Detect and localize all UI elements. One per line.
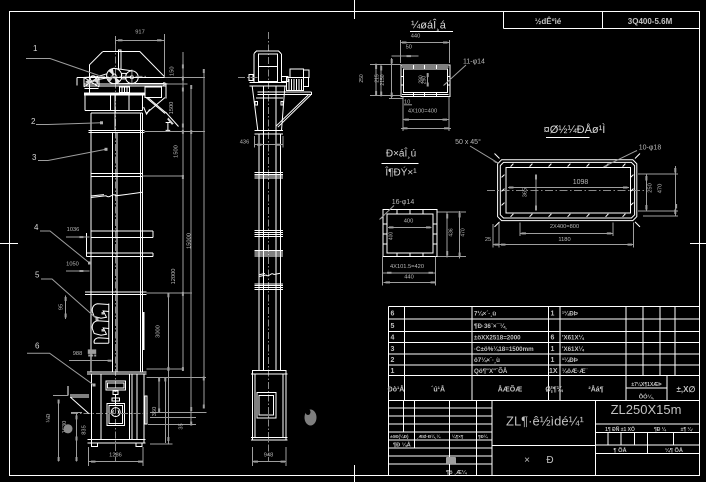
svg-text:470: 470 (658, 184, 664, 194)
svg-text:1286: 1286 (109, 453, 122, 459)
svg-text:3000: 3000 (156, 325, 162, 338)
svg-text:1500: 1500 (174, 145, 180, 158)
svg-text:2: 2 (391, 357, 395, 364)
svg-text:400: 400 (389, 232, 395, 241)
svg-text:4: 4 (34, 223, 39, 232)
svg-text:ZL250X15m: ZL250X15m (611, 402, 682, 417)
svg-text:ZL¶·ê½ìdé¼¹: ZL¶·ê½ìdé¼¹ (506, 414, 584, 429)
svg-text:1: 1 (551, 311, 555, 318)
svg-text:1: 1 (391, 368, 395, 375)
svg-text:¹¼ÐÞ: ¹¼ÐÞ (562, 311, 578, 318)
svg-text:948: 948 (264, 453, 274, 459)
svg-text:±,X∅: ±,X∅ (677, 385, 696, 394)
svg-text:Qö¶"X"´ÕÅ: Qö¶"X"´ÕÅ (474, 368, 508, 375)
svg-text:440: 440 (411, 34, 421, 40)
svg-text:3: 3 (391, 346, 395, 353)
svg-text:±öÐ(¼Ð): ±öÐ(¼Ð) (390, 433, 409, 439)
svg-text:1X: 1X (549, 368, 558, 375)
svg-text:250: 250 (422, 76, 428, 85)
svg-text:25: 25 (485, 237, 491, 243)
svg-text:150: 150 (169, 66, 175, 76)
svg-text:±7¼X¶1XÆÞ: ±7¼X¶1XÆÞ (631, 381, 662, 388)
svg-text:²Åá¶: ²Åá¶ (588, 385, 603, 394)
svg-text:917: 917 (135, 30, 145, 36)
svg-text:436: 436 (449, 228, 455, 237)
svg-text:95: 95 (59, 304, 65, 310)
svg-text:11-φ14: 11-φ14 (463, 59, 485, 66)
svg-text:¼øáÎ¸á: ¼øáÎ¸á (411, 19, 447, 32)
svg-text:·C±ö%¼18=1500mm: ·C±ö%¼18=1500mm (474, 346, 534, 353)
svg-text:6: 6 (35, 342, 40, 351)
svg-text:250: 250 (359, 74, 365, 83)
svg-text:±öXX2518=2000: ±öXX2518=2000 (474, 335, 521, 342)
svg-text:'X61X¼: 'X61X¼ (562, 335, 585, 342)
svg-text:½dÊºìé: ½dÊºìé (535, 17, 562, 26)
svg-text:1180: 1180 (558, 237, 570, 243)
svg-text:¶Ð¼: ¶Ð¼ (478, 433, 489, 439)
svg-text:5: 5 (35, 271, 40, 280)
svg-text:1500: 1500 (169, 102, 175, 115)
svg-text:4X100=400: 4X100=400 (408, 109, 437, 115)
svg-text:1: 1 (33, 44, 38, 53)
svg-text:¤Ø½¼ÐÅø¹Ì: ¤Ø½¼ÐÅø¹Ì (544, 123, 606, 136)
svg-text:15000: 15000 (187, 233, 193, 249)
svg-text:¼Ð: ¼Ð (46, 414, 52, 423)
svg-text:¼¶ ÕÅ: ¼¶ ÕÅ (665, 447, 683, 454)
svg-text:400: 400 (404, 219, 414, 225)
svg-text:250: 250 (648, 183, 654, 193)
svg-text:¶Ð ¼: ¶Ð ¼ (654, 426, 667, 433)
svg-text:4: 4 (391, 335, 395, 342)
svg-text:¼¶×¶: ¼¶×¶ (452, 433, 464, 439)
svg-text:365: 365 (523, 188, 529, 198)
svg-text:6: 6 (551, 335, 555, 342)
svg-text:ÅÆÕÆ: ÅÆÕÆ (498, 385, 523, 394)
svg-text:ÕÓ¼¸: ÕÓ¼¸ (639, 393, 655, 401)
svg-text:16-φ14: 16-φ14 (392, 199, 415, 206)
svg-text:50: 50 (406, 45, 412, 51)
svg-text:Î¶ÐÝ×¹: Î¶ÐÝ×¹ (384, 166, 417, 179)
svg-text:ö7¼×´·¸ù: ö7¼×´·¸ù (474, 357, 500, 364)
svg-text:2: 2 (31, 117, 36, 126)
svg-text:1036: 1036 (67, 227, 80, 233)
svg-text:Ðò¹Å: Ðò¹Å (388, 385, 405, 394)
svg-text:×: × (524, 455, 530, 466)
svg-text:¶ö ¸Æ¼: ¶ö ¸Æ¼ (446, 469, 468, 476)
svg-text:¼öÆ·Æ¨: ¼öÆ·Æ¨ (562, 368, 588, 375)
svg-text:1: 1 (551, 346, 555, 353)
svg-text:2150: 2150 (380, 74, 386, 85)
svg-text:50 x 45°: 50 x 45° (455, 138, 481, 146)
svg-text:470: 470 (461, 228, 467, 237)
svg-text:440: 440 (404, 275, 414, 281)
svg-text:12000: 12000 (171, 269, 177, 285)
svg-text:1098: 1098 (573, 179, 589, 186)
svg-text:4X101.5=420: 4X101.5=420 (390, 264, 424, 270)
svg-text:¸ÆØ·Ð¼¸¼: ¸ÆØ·Ð¼¸¼ (417, 433, 441, 439)
svg-text:Ð×áÎ¸ú: Ð×áÎ¸ú (386, 147, 416, 160)
svg-text:2X400=800: 2X400=800 (550, 224, 579, 230)
svg-text:10-φ18: 10-φ18 (639, 145, 662, 152)
svg-text:Ð: Ð (546, 455, 553, 466)
svg-text:¶Ð ¼Å: ¶Ð ¼Å (393, 442, 411, 449)
svg-text:1: 1 (551, 357, 555, 364)
svg-text:'X61X¼: 'X61X¼ (562, 346, 585, 353)
svg-text:988: 988 (73, 351, 83, 357)
svg-text:1050: 1050 (66, 261, 79, 267)
svg-text:5: 5 (391, 323, 395, 330)
svg-text:3: 3 (32, 153, 37, 162)
svg-text:35: 35 (178, 423, 184, 429)
svg-text:¶ ÕÅ: ¶ ÕÅ (613, 447, 626, 454)
svg-text:Ø¦¶¼: Ø¦¶¼ (545, 386, 563, 394)
svg-text:360: 360 (152, 407, 158, 417)
svg-text:¶Ð·36¨×¯¼¸: ¶Ð·36¨×¯¼¸ (474, 323, 507, 330)
svg-text:±¶ ¼·: ±¶ ¼· (681, 426, 694, 433)
svg-text:¹¼ÐÞ: ¹¼ÐÞ (562, 357, 578, 364)
svg-text:835: 835 (82, 425, 88, 435)
svg-text:436: 436 (240, 139, 250, 145)
svg-text:3Q400-5.6M: 3Q400-5.6M (628, 17, 673, 26)
svg-text:1¶ ÐÑ ±1 XÖ: 1¶ ÐÑ ±1 XÖ (605, 426, 635, 433)
svg-text:7¼×´·¸ù: 7¼×´·¸ù (474, 311, 496, 318)
svg-text:´ú¹Å: ´ú¹Å (431, 385, 445, 394)
svg-text:6: 6 (391, 311, 395, 318)
